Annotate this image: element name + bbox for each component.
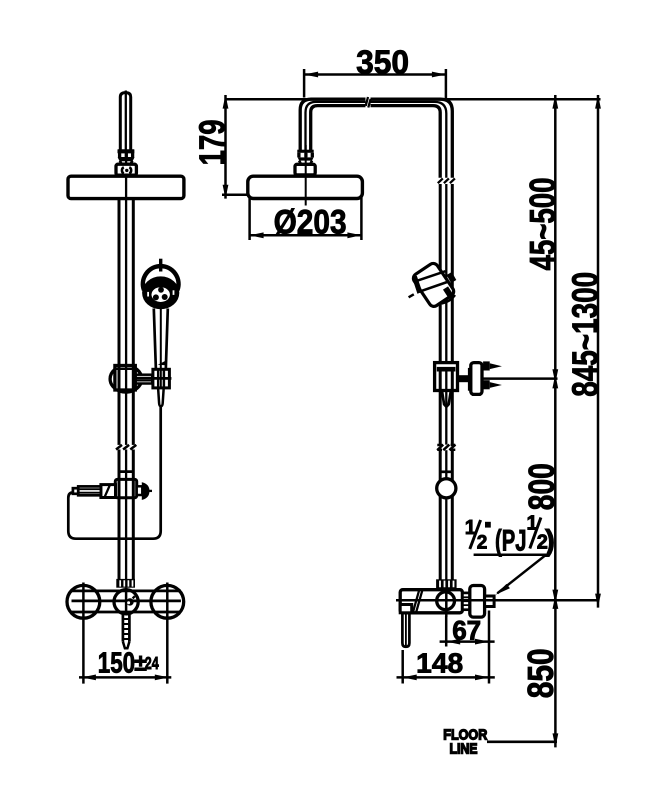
- svg-text:850: 850: [520, 648, 561, 698]
- svg-text:350: 350: [356, 45, 409, 82]
- svg-text:845~1300: 845~1300: [564, 272, 605, 397]
- svg-text:800: 800: [521, 463, 562, 510]
- svg-text:24: 24: [145, 653, 159, 673]
- svg-text:150: 150: [98, 648, 135, 680]
- svg-text:45~500: 45~500: [522, 178, 563, 271]
- svg-text:(PJ: (PJ: [495, 524, 527, 557]
- svg-text:2: 2: [477, 533, 488, 554]
- svg-text:): ): [545, 524, 555, 557]
- svg-text:148: 148: [416, 648, 463, 679]
- svg-text:67: 67: [452, 615, 481, 645]
- svg-text:LINE: LINE: [450, 741, 478, 758]
- svg-text:179: 179: [191, 119, 232, 165]
- svg-text:Ø203: Ø203: [274, 203, 347, 241]
